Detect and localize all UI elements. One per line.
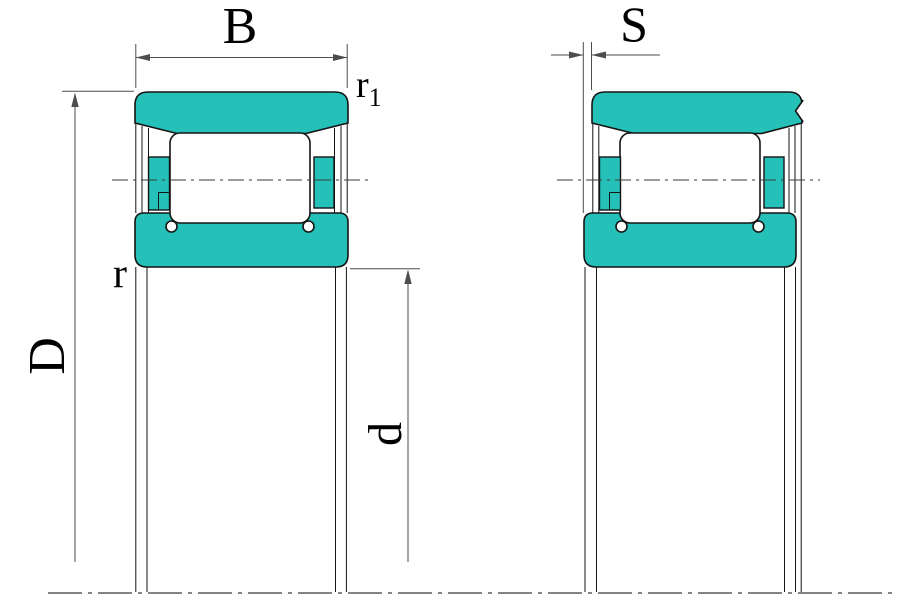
right-bore-lines bbox=[585, 267, 796, 592]
label-r1-base: r bbox=[356, 64, 369, 106]
dimension-d-arrowhead bbox=[404, 270, 411, 285]
right-outer-ring bbox=[592, 92, 802, 134]
dimension-B: B bbox=[136, 0, 347, 88]
left-bore-lines bbox=[136, 267, 347, 592]
right-relief-groove-circle bbox=[753, 221, 764, 232]
left-cage-right-block bbox=[314, 157, 334, 208]
dimension-S-extension-lines bbox=[583, 42, 591, 213]
label-r: r bbox=[113, 251, 127, 297]
right-relief-groove-circle bbox=[616, 221, 627, 232]
label-D: D bbox=[19, 337, 76, 375]
right-cage-right-block bbox=[764, 157, 784, 208]
dimension-d: d bbox=[350, 269, 420, 562]
label-B: B bbox=[223, 0, 258, 55]
label-S: S bbox=[620, 0, 648, 52]
label-r1: r1 bbox=[356, 64, 382, 112]
left-relief-groove-circle bbox=[166, 221, 177, 232]
left-relief-groove-circle bbox=[303, 221, 314, 232]
label-d: d bbox=[359, 422, 412, 446]
dimension-B-arrowhead-left bbox=[136, 54, 150, 61]
left-outer-ring bbox=[135, 92, 348, 134]
dimension-B-arrowhead-right bbox=[333, 54, 347, 61]
bearing-diagram-svg: B S D d r1 r bbox=[0, 0, 900, 600]
dimension-D: D bbox=[19, 91, 134, 562]
dimension-S-arrowhead-left bbox=[569, 52, 583, 59]
left-roller bbox=[170, 133, 310, 223]
label-r1-subscript: 1 bbox=[369, 83, 382, 112]
dimension-S-arrowhead-right bbox=[592, 52, 607, 59]
bearing-drawing-canvas: B S D d r1 r bbox=[0, 0, 900, 600]
right-bearing-section bbox=[557, 92, 820, 592]
right-roller bbox=[620, 133, 760, 223]
dimension-D-arrowhead bbox=[71, 93, 78, 108]
left-bearing-section bbox=[112, 92, 370, 592]
